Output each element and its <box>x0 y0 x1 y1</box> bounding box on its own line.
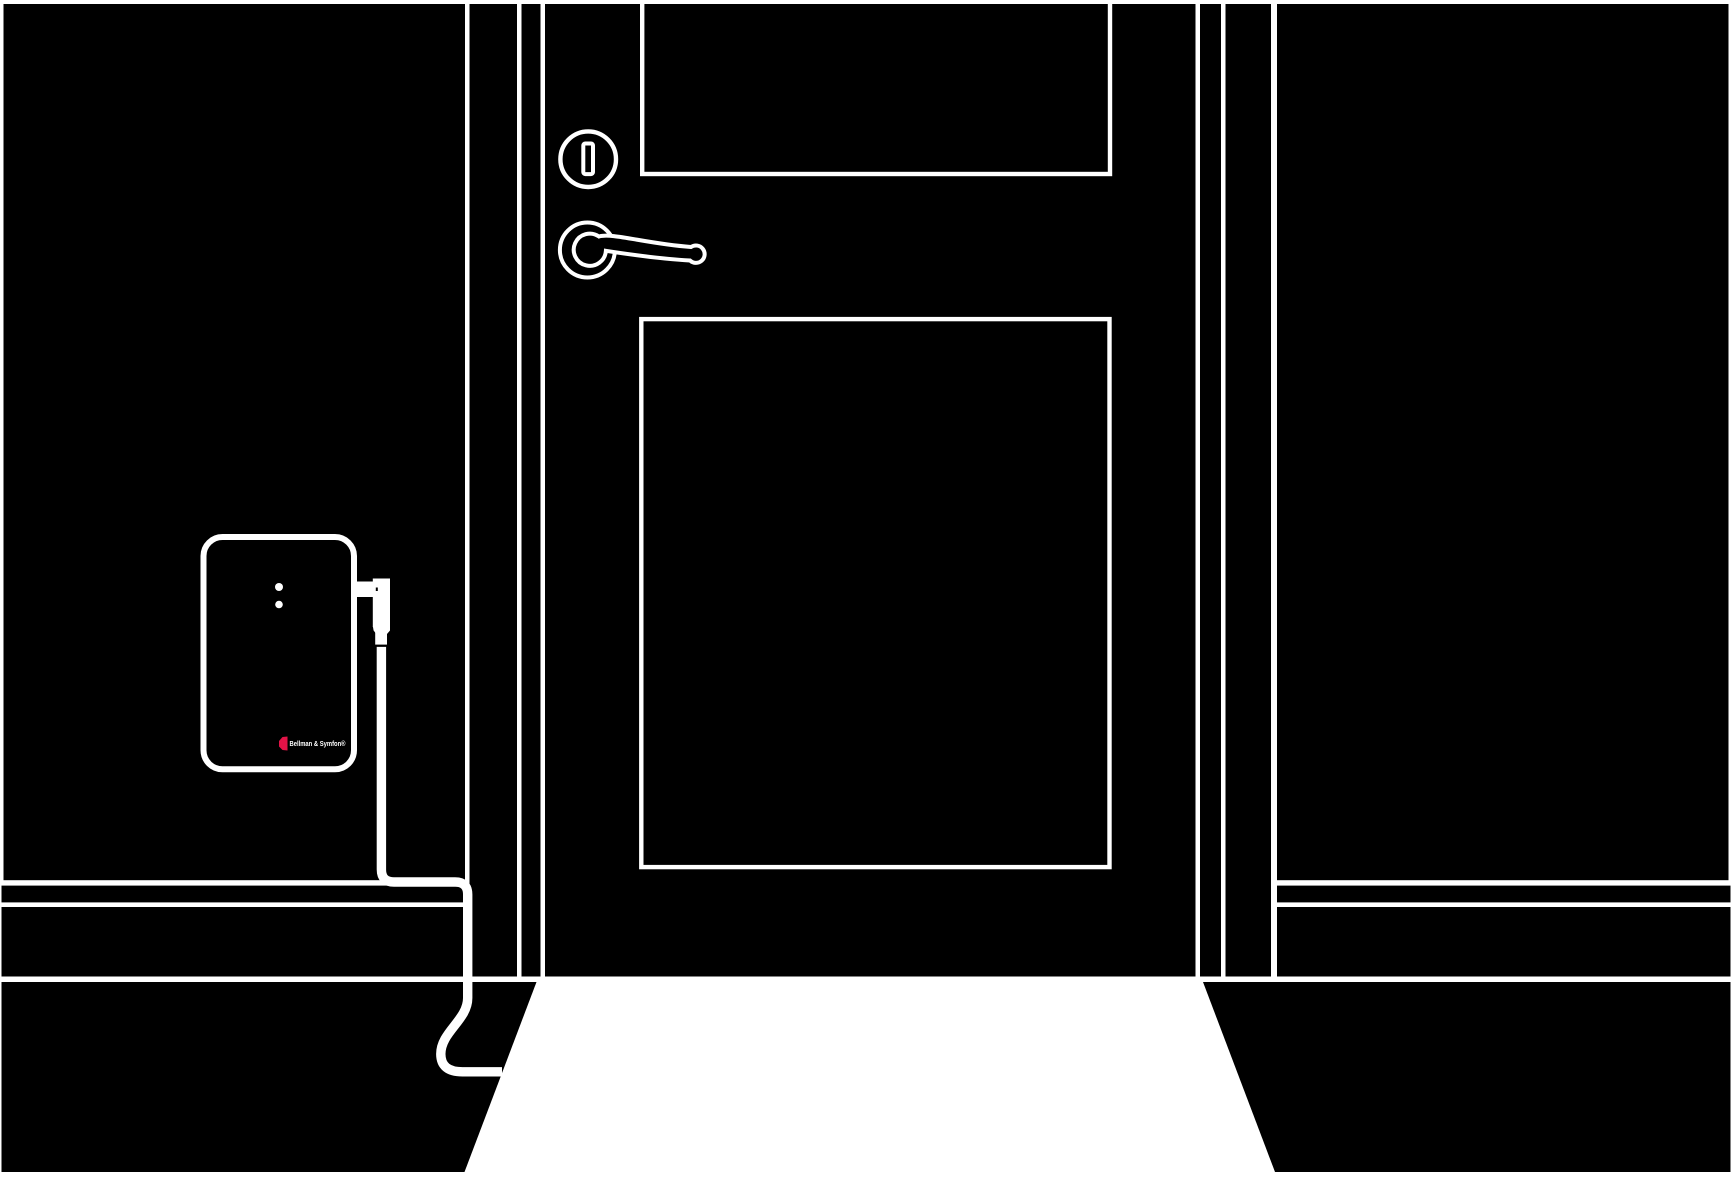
svg-text:Bellman & Symfon®: Bellman & Symfon® <box>290 739 346 748</box>
